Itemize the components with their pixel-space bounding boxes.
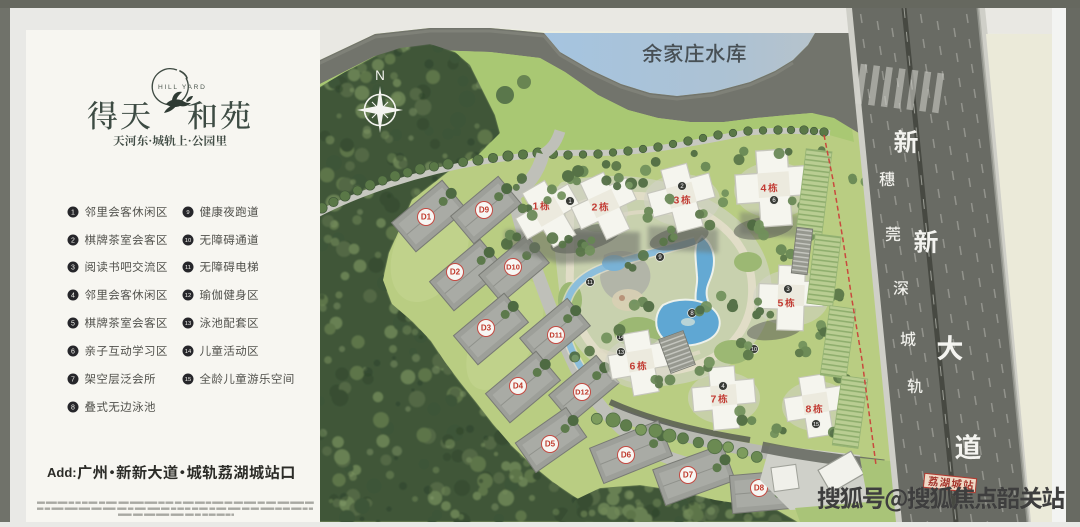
svg-text:Add:: Add:: [47, 465, 77, 480]
svg-text:6: 6: [71, 348, 75, 355]
svg-text:2: 2: [592, 202, 598, 214]
svg-text:15: 15: [185, 377, 191, 383]
svg-text:HILL YARD: HILL YARD: [158, 84, 207, 91]
svg-text:8: 8: [806, 404, 812, 416]
svg-text:D4: D4: [513, 382, 524, 391]
svg-text:D2: D2: [450, 268, 461, 277]
svg-text:4: 4: [761, 183, 767, 195]
svg-text:D1: D1: [421, 213, 432, 222]
svg-text:13: 13: [185, 321, 191, 327]
svg-text:D6: D6: [621, 451, 632, 460]
svg-text:14: 14: [185, 349, 192, 355]
svg-text:12: 12: [185, 293, 191, 299]
svg-text:7: 7: [711, 394, 717, 406]
svg-text:9: 9: [186, 210, 189, 216]
svg-text:10: 10: [185, 238, 191, 244]
svg-text:D8: D8: [754, 484, 765, 493]
svg-text:D9: D9: [479, 206, 490, 215]
svg-text:D11: D11: [549, 331, 562, 340]
svg-text:13: 13: [618, 350, 624, 356]
svg-text:15: 15: [813, 422, 819, 428]
svg-text:3: 3: [674, 195, 680, 207]
svg-text:2: 2: [71, 237, 75, 244]
svg-text:D12: D12: [575, 388, 589, 397]
svg-text:6: 6: [630, 361, 636, 373]
svg-text:11: 11: [587, 280, 593, 286]
svg-text:D7: D7: [683, 471, 694, 480]
svg-text:D10: D10: [506, 263, 520, 272]
svg-text:D3: D3: [481, 324, 492, 333]
svg-text:N: N: [375, 68, 385, 83]
svg-text:1: 1: [71, 209, 75, 216]
svg-text:5: 5: [71, 320, 75, 327]
svg-text:11: 11: [185, 265, 191, 271]
svg-text:D5: D5: [545, 440, 556, 449]
svg-text:5: 5: [778, 298, 784, 310]
svg-text:3: 3: [71, 264, 75, 271]
svg-text:7: 7: [71, 376, 75, 383]
svg-text:8: 8: [71, 404, 75, 411]
svg-text:4: 4: [71, 292, 75, 299]
